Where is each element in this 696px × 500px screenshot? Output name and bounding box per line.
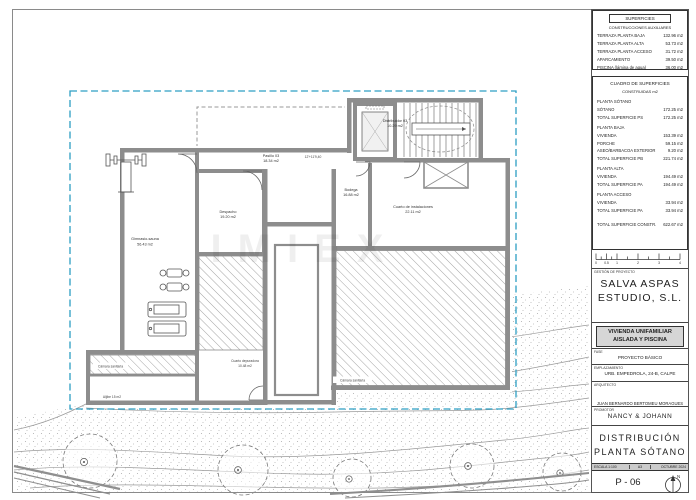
table-row: VIVIENDA153.39 m2 — [597, 133, 683, 138]
svg-text:N: N — [677, 474, 680, 479]
firm-name: SALVA ASPAS ESTUDIO, S.L. — [592, 278, 688, 305]
table-row: TOTAL SUPERFICIE PB221.74 m2 — [597, 156, 683, 161]
table-row: PORCHE59.15 m2 — [597, 141, 683, 146]
table-row: VIVIENDA194.49 m2 — [597, 174, 683, 179]
sheet-number: P - 06 — [592, 477, 664, 488]
table-row: ASEO/BARBACOA EXTERIOR9.20 m2 — [597, 148, 683, 153]
scale-bar: 0 0.5 1 2 3 4 — [592, 252, 688, 268]
sheet-number-row: P - 06 N — [592, 471, 688, 492]
table-row: SÓTANO172.25 m2 — [597, 107, 683, 112]
emplazamiento-value: URB. EMPEDROLA, 24-B, CALPE — [592, 371, 688, 381]
table-total-row: TOTAL SUPERFICIE CONSTR.622.67 m2 — [597, 222, 683, 227]
section-header: PLANTA ALTA — [597, 166, 683, 171]
table-row: TOTAL SUPERFICIE PA194.49 m2 — [597, 182, 683, 187]
arquitecto-value: JUAN BERNARDO BERTOMEU MORAGUES — [592, 388, 688, 406]
table-row: PISCINA (lámina de agua)36.00 m2 — [597, 65, 683, 70]
section-header: PLANTA ACCESO — [597, 192, 683, 197]
north-arrow-icon: N — [663, 472, 685, 494]
built-areas-table: CUADRO DE SUPERFICIES CONSTRUIDAS m2 PLA… — [592, 76, 688, 250]
title-block: SUPERFICIES CONSTRUCCIONES AUXILIARES TE… — [591, 9, 689, 493]
paper-size: A3 — [630, 465, 650, 469]
date-value: OCTUBRE 2024 — [651, 465, 688, 469]
firm-box: GESTIÓN DE PROYECTO SALVA ASPAS ESTUDIO,… — [592, 268, 688, 322]
fase-value: PROYECTO BÁSICO — [592, 355, 688, 364]
table-title: SUPERFICIES — [609, 14, 671, 23]
promotor-label: PROMOTOR — [592, 406, 688, 413]
table-row: VIVIENDA33.94 m2 — [597, 200, 683, 205]
table-row: TERRAZA PLANTA ALTA53.73 m2 — [597, 41, 683, 46]
scale-value: ESCALA 1:100 — [592, 465, 630, 469]
table-row: TOTAL SUPERFICIE PS172.25 m2 — [597, 115, 683, 120]
promotor-value: NANCY & JOHANN — [592, 413, 688, 425]
table-row: APARCAMIENTO39.50 m2 — [597, 57, 683, 62]
section-header: PLANTA BAJA — [597, 125, 683, 130]
table-row: TERRAZA PLANTA ACCESO31.72 m2 — [597, 49, 683, 54]
sheet-frame — [12, 9, 688, 493]
arquitecto-label: ARQUITECTO — [592, 381, 688, 388]
emplazamiento-label: EMPLAZAMIENTO — [592, 364, 688, 371]
table-row: TOTAL SUPERFICIE PA33.94 m2 — [597, 208, 683, 213]
project-name-box: VIVIENDA UNIFAMILIAR AISLADA Y PISCINA — [592, 322, 688, 348]
table-title: CUADRO DE SUPERFICIES — [593, 81, 687, 87]
table-row: TERRAZA PLANTA BAJA132.96 m2 — [597, 33, 683, 38]
section-header: PLANTA SÓTANO — [597, 99, 683, 104]
firm-role-label: GESTIÓN DE PROYECTO — [592, 268, 688, 274]
drawing-title: DISTRIBUCIÓN PLANTA SÓTANO — [592, 425, 688, 463]
fase-label: FASE — [592, 348, 688, 355]
drawing-sheet: Distribuidor 03 10.29 m2 Pasillo 03 18.3… — [0, 0, 696, 500]
scale-bar-ruler — [592, 252, 688, 261]
meta-strip: ESCALA 1:100 A3 OCTUBRE 2024 — [592, 463, 688, 471]
table-subtitle: CONSTRUCCIONES AUXILIARES — [593, 26, 687, 31]
table-subtitle: CONSTRUIDAS m2 — [593, 90, 687, 95]
aux-areas-table: SUPERFICIES CONSTRUCCIONES AUXILIARES TE… — [592, 10, 688, 70]
